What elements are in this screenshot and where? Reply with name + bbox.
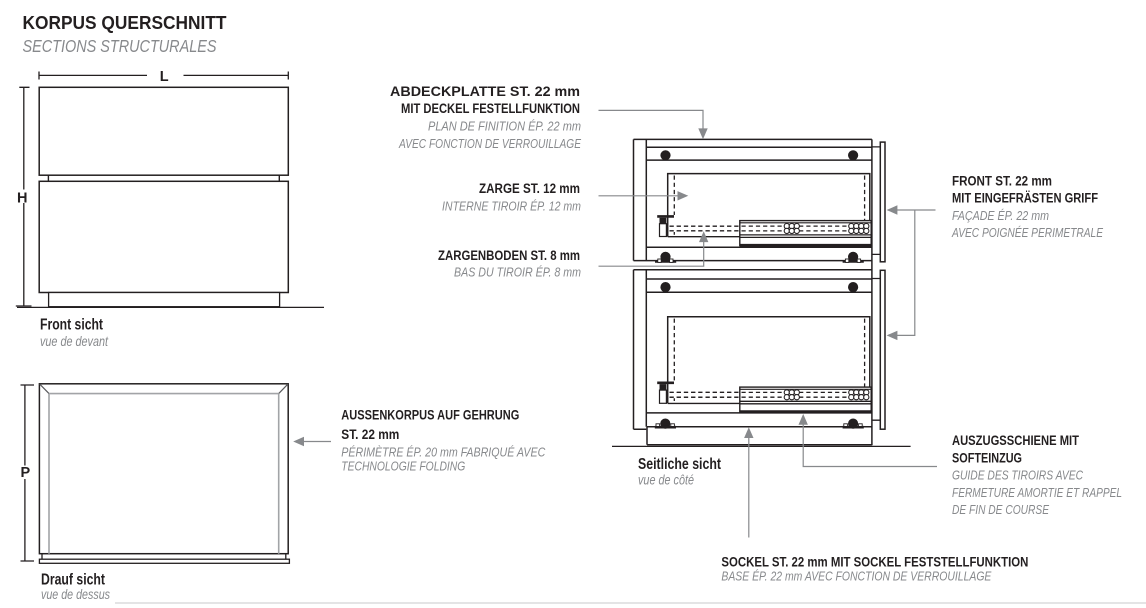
svg-text:vue de devant: vue de devant — [40, 333, 109, 349]
svg-text:FERMETURE AMORTIE ET RAPPEL: FERMETURE AMORTIE ET RAPPEL — [952, 485, 1122, 500]
svg-text:DE FIN DE COURSE: DE FIN DE COURSE — [952, 502, 1049, 517]
svg-text:Front sicht: Front sicht — [40, 317, 103, 334]
svg-text:AUSSENKORPUS AUF GEHRUNG: AUSSENKORPUS AUF GEHRUNG — [341, 408, 519, 423]
svg-text:vue de côté: vue de côté — [638, 472, 694, 488]
svg-text:FRONT ST. 22 mm: FRONT ST. 22 mm — [952, 174, 1052, 189]
svg-text:P: P — [21, 465, 31, 481]
svg-text:MIT EINGEFRÄSTEN GRIFF: MIT EINGEFRÄSTEN GRIFF — [952, 191, 1098, 206]
svg-text:BASE ÉP. 22 mm AVEC FONCTION D: BASE ÉP. 22 mm AVEC FONCTION DE VERROUIL… — [721, 568, 991, 583]
svg-text:BAS DU TIROIR ÉP. 8 mm: BAS DU TIROIR ÉP. 8 mm — [454, 264, 581, 279]
svg-text:H: H — [17, 191, 27, 207]
svg-text:ST. 22 mm: ST. 22 mm — [341, 427, 399, 442]
svg-text:ABDECKPLATTE ST. 22 mm: ABDECKPLATTE ST. 22 mm — [390, 84, 580, 99]
svg-text:vue de dessus: vue de dessus — [41, 586, 110, 602]
svg-text:INTERNE TIROIR ÉP. 12 mm: INTERNE TIROIR ÉP. 12 mm — [442, 198, 581, 213]
svg-text:Seitliche sicht: Seitliche sicht — [638, 456, 721, 473]
svg-text:SECTIONS STRUCTURALES: SECTIONS STRUCTURALES — [23, 36, 217, 56]
svg-text:FAÇADE ÉP. 22 mm: FAÇADE ÉP. 22 mm — [952, 208, 1049, 223]
svg-text:PÉRIMÈTRE ÉP. 20 mm FABRIQUÉ A: PÉRIMÈTRE ÉP. 20 mm FABRIQUÉ AVEC — [341, 444, 545, 459]
svg-text:TECHNOLOGIE FOLDING: TECHNOLOGIE FOLDING — [341, 458, 465, 473]
svg-text:AVEC POIGNÉE PERIMETRALE: AVEC POIGNÉE PERIMETRALE — [951, 225, 1103, 240]
svg-text:ZARGE ST. 12 mm: ZARGE ST. 12 mm — [479, 181, 580, 196]
svg-text:ZARGENBODEN ST. 8 mm: ZARGENBODEN ST. 8 mm — [438, 248, 580, 263]
svg-text:SOCKEL ST. 22 mm MIT SOCKEL FE: SOCKEL ST. 22 mm MIT SOCKEL FESTSTELLFUN… — [721, 554, 1028, 569]
svg-text:GUIDE DES TIROIRS AVEC: GUIDE DES TIROIRS AVEC — [952, 468, 1083, 483]
svg-text:AVEC FONCTION DE VERROUILLAGE: AVEC FONCTION DE VERROUILLAGE — [398, 136, 581, 151]
svg-text:L: L — [160, 69, 169, 85]
svg-text:MIT DECKEL FESTELLFUNKTION: MIT DECKEL FESTELLFUNKTION — [401, 101, 580, 116]
svg-text:KORPUS QUERSCHNITT: KORPUS QUERSCHNITT — [23, 12, 228, 33]
svg-text:AUSZUGSSCHIENE MIT: AUSZUGSSCHIENE MIT — [952, 433, 1080, 448]
svg-text:SOFTEINZUG: SOFTEINZUG — [952, 451, 1022, 466]
svg-text:PLAN DE FINITION ÉP. 22 mm: PLAN DE FINITION ÉP. 22 mm — [428, 119, 581, 134]
